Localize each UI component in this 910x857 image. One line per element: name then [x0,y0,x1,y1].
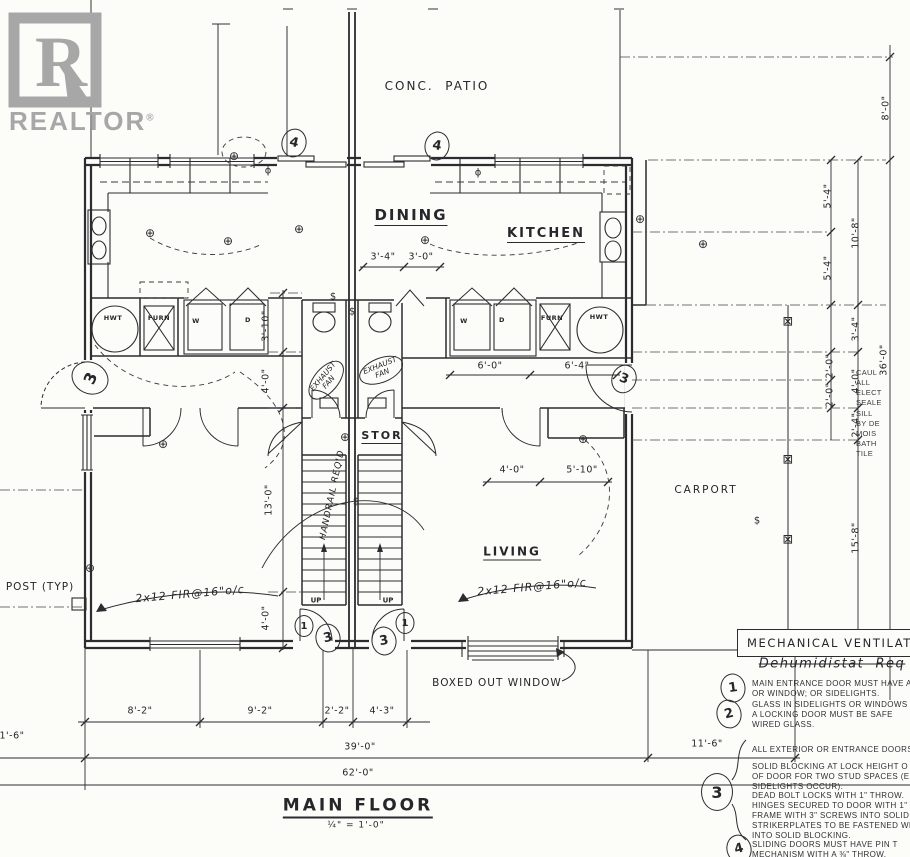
carport-post-icon: ⊠ [783,533,794,548]
dim-5-4-a: 5'-4" [823,184,833,209]
sheet-scale: ¼" = 1'-0" [327,822,384,831]
keynote-1-entry-left: 1 [295,615,314,637]
dim-2-0-b: 2'-0" [825,383,835,408]
up-label-right: UP [383,598,394,605]
light-fixture-icon: ⊕ [578,432,588,446]
stairs [262,460,424,600]
carport-post-icon: ⊠ [783,453,794,468]
light-fixture-icon: ⊕ [698,237,708,251]
dim-3-4-right: 3'-4" [851,317,861,342]
light-fixture-icon: ⊕ [294,222,304,236]
hwt-label-left: HWT [104,315,123,322]
note-number-3: 3 [701,773,733,811]
furnace-label-left: FURN [148,315,170,322]
furnace-label-right: FURN [541,315,563,322]
dim-8-2: 8'-2" [128,706,153,716]
up-arrow-right [377,543,383,552]
dim-10-8: 10'-8" [851,217,861,249]
up-arrow-left [321,543,327,552]
light-fixture-icon: ⊕ [85,561,95,575]
dim-3-10: 3'-10" [261,310,271,342]
switch-icon: $ [353,497,359,508]
sheet-title: MAIN FLOOR [283,798,433,819]
dim-6-4: 6'-4" [565,361,590,371]
light-fixture-icon: ⊕ [158,437,168,451]
light-fixture-icon: ⊕ [340,430,350,444]
light-fixture-icon: ⊕ [229,149,239,163]
room-label-kitchen: KITCHEN [507,227,585,243]
light-fixture-icon: ⊕ [635,212,645,226]
dryer-label-left: D [245,317,251,324]
dim-11-6-left-clipped: 1'-6" [0,731,25,741]
dryer-label-right: D [499,317,505,324]
room-label-carport: CARPORT [674,485,737,496]
hwt-label-right: HWT [590,314,609,321]
dehumidistat-note: Dehumidistat Req [759,658,906,671]
up-label-left: UP [311,598,322,605]
switch-icon: $ [330,292,336,303]
outlet-icon: ϕ [475,168,482,179]
patio-lines [91,0,624,158]
note-4-text: SLIDING DOORS MUST HAVE PIN T MECHANISM … [752,840,910,857]
keynote-1-entry-right: 1 [396,612,415,634]
dim-2-2: 2'-2" [325,706,350,716]
note-3b-text: SOLID BLOCKING AT LOCK HEIGHT O OF DOOR … [752,762,910,791]
switch-icon: $ [349,307,355,318]
joist-arrowhead-right [458,593,469,602]
dim-4-0-a: 4'-0" [261,369,271,394]
floor-plan-sheet: R REALTOR® CONC. PATIO DINING KITCHEN ST… [0,0,910,857]
party-wall [349,12,355,648]
outlet-icon: ϕ [265,166,272,177]
room-label-patio: CONC. PATIO [385,80,490,92]
carport-post-icon: ⊠ [783,315,794,330]
dim-3-0-dining: 3'-0" [409,252,434,262]
note-3e-text: STRIKERPLATES TO BE FASTENED WIT INTO SO… [752,821,910,841]
dim-2-0-a: 2'-0" [825,354,835,379]
dim-5-4-b: 5'-4" [823,256,833,281]
dim-15-8: 15'-8" [851,522,861,554]
dim-39-0: 39'-0" [344,742,376,752]
note-3a-text: ALL EXTERIOR OR ENTRANCE DOORS [752,745,910,755]
light-fixture-icon: ⊕ [223,234,233,248]
dim-11-6-right: 11'-6" [691,739,723,749]
note-1-text: MAIN ENTRANCE DOOR MUST HAVE A OR WINDOW… [752,679,910,699]
mechanical-ventilation-title: MECHANICAL VENTILATION IS [738,636,910,650]
boxed-out-window-label: BOXED OUT WINDOW [432,678,562,689]
dim-13-0: 13'-0" [264,484,274,516]
room-label-stor: STOR [361,430,402,444]
post-typ-label: POST (TYP) [6,582,74,593]
mechanical-ventilation-box: MECHANICAL VENTILATION IS [737,629,910,657]
note-3c-text: DEAD BOLT LOCKS WITH 1" THROW. [752,791,910,801]
washer-label-right: W [460,318,468,325]
dim-4-0-living: 4'-0" [500,465,525,475]
joist-arrowhead-left [96,603,107,612]
light-fixture-icon: ⊕ [420,233,430,247]
carport-lines [632,305,788,650]
note-2-text: GLASS IN SIDELIGHTS OR WINDOWS W A LOCKI… [752,700,910,729]
dim-62-0: 62'-0" [342,768,374,778]
room-label-living: LIVING [483,546,541,561]
dim-3-4-dining: 3'-4" [371,252,396,262]
switch-icon: $ [754,516,760,527]
washer-label-left: W [192,318,200,325]
dim-8-0: 8'-0" [881,96,891,121]
registered-mark-icon: ® [146,112,155,123]
dim-5-10: 5'-10" [566,465,598,475]
dim-4-0-b: 4'-0" [261,606,271,631]
dim-6-0: 6'-0" [478,361,503,371]
realtor-logo: R REALTOR® [6,10,136,130]
clipped-edge-notes: CAUL ALL ELECT SEALE SILL BY DE MOIS BAT… [856,368,910,459]
room-label-dining: DINING [374,208,447,226]
note-3d-text: HINGES SECURED TO DOOR WITH 1" SC FRAME … [752,801,910,821]
dim-4-3: 4'-3" [370,706,395,716]
logo-brand-text: REALTOR® [9,106,156,137]
light-fixture-icon: ⊕ [145,226,155,240]
dim-9-2: 9'-2" [248,706,273,716]
